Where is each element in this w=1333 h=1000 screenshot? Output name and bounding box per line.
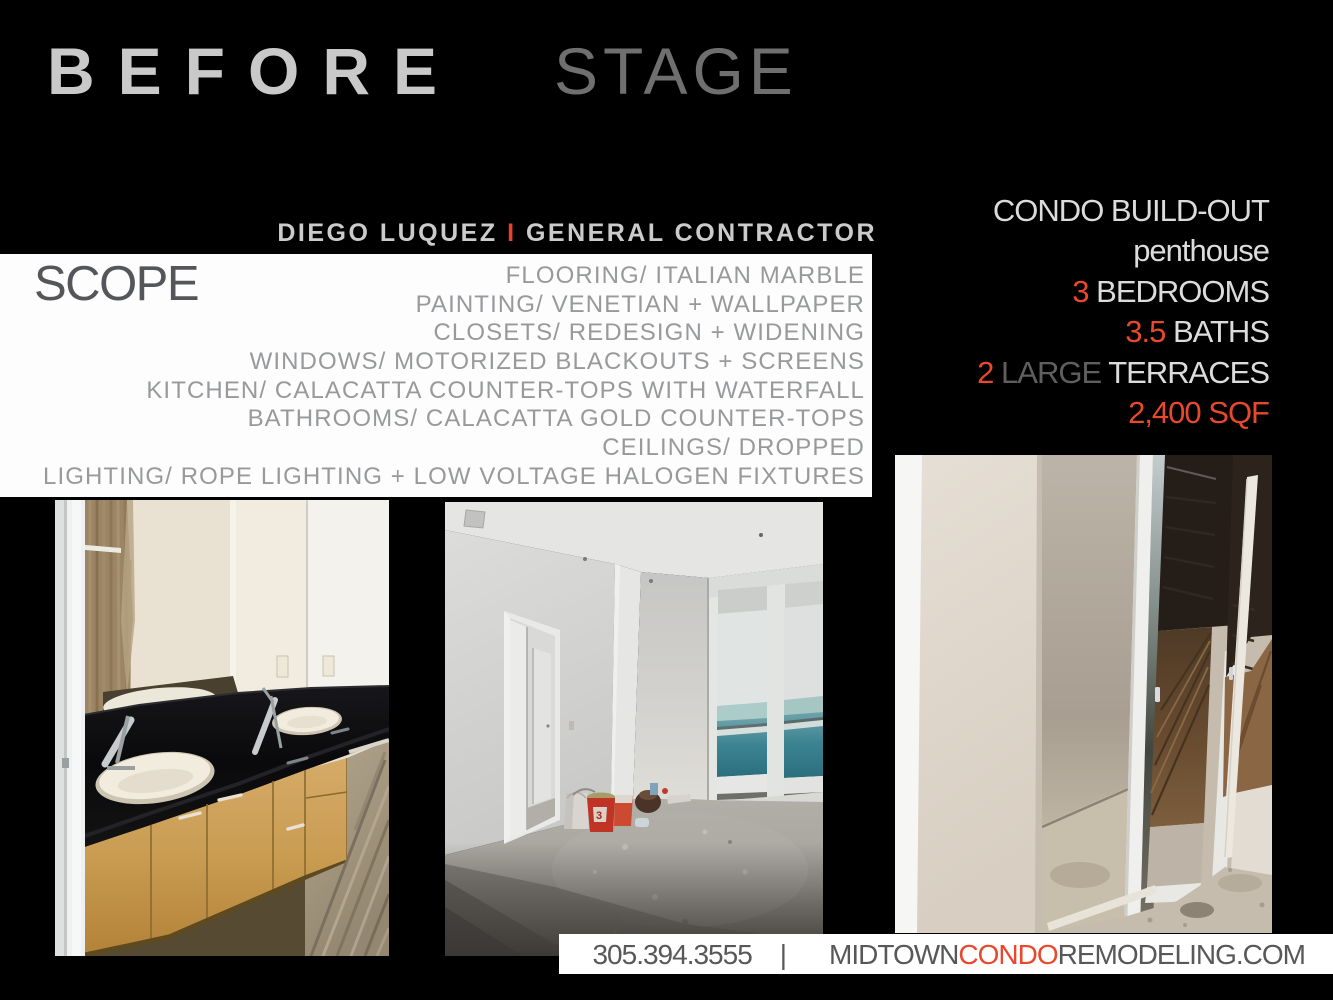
svg-text:3: 3 bbox=[596, 810, 602, 822]
